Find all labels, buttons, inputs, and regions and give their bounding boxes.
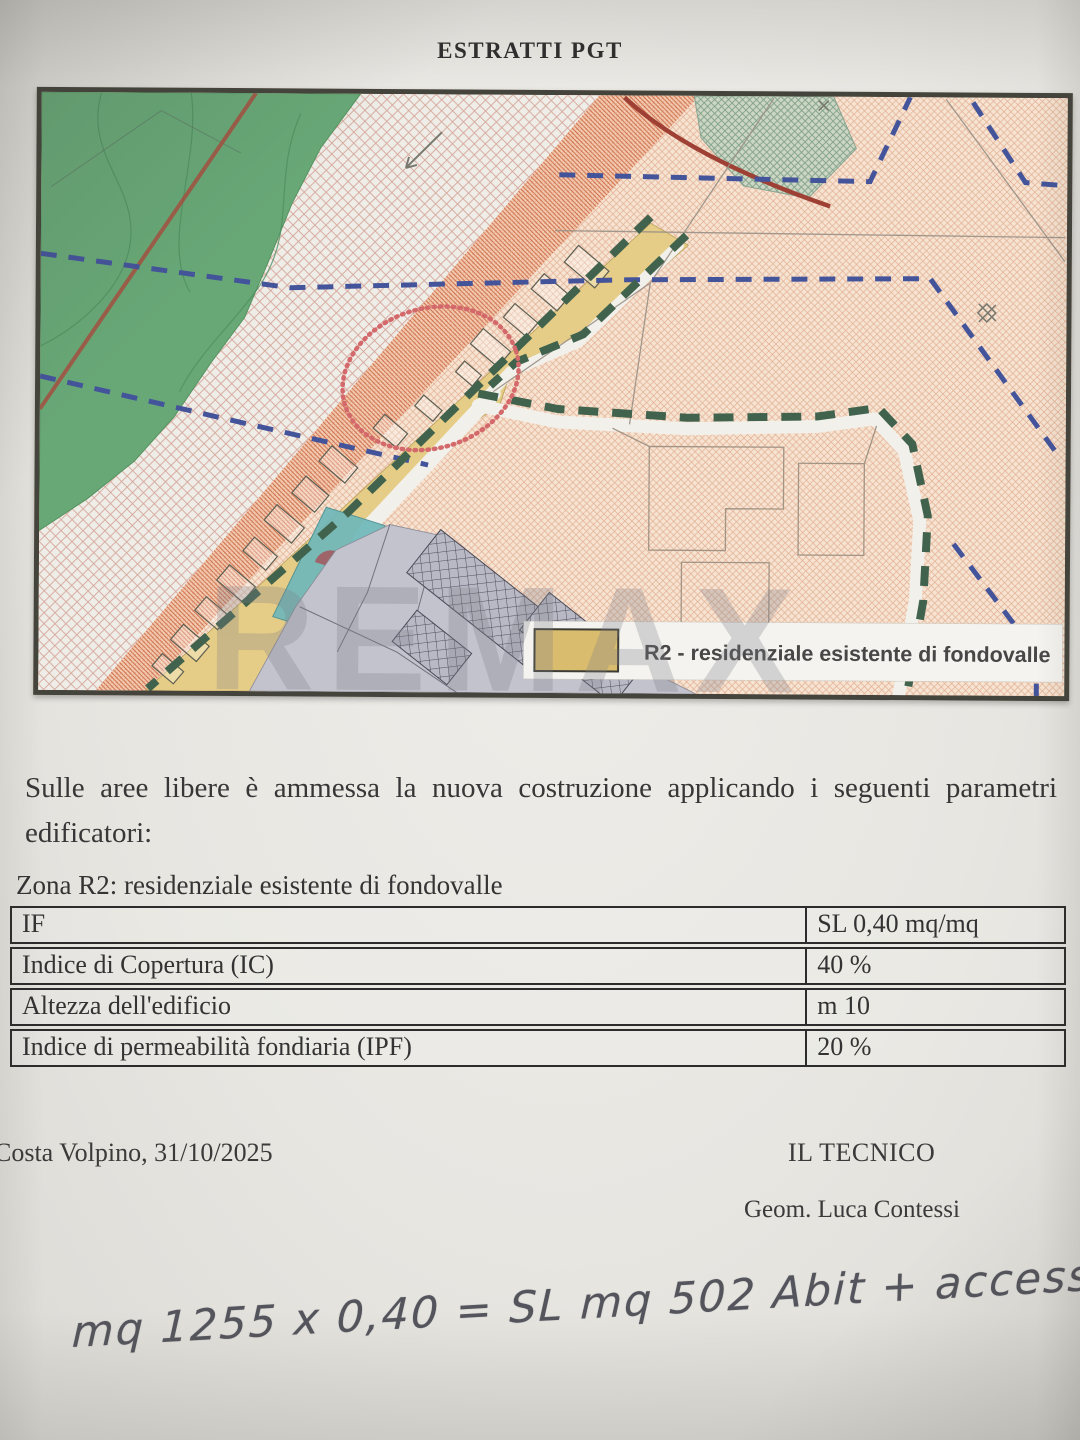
pgt-map-figure: R2 - residenziale esistente di fondovall… — [33, 87, 1073, 701]
page-title: ESTRATTI PGT — [0, 38, 1060, 64]
parameter-value: m 10 — [805, 990, 1064, 1024]
parameter-label: Indice di permeabilità fondiaria (IPF) — [12, 1031, 805, 1065]
watermark: REMAX — [207, 554, 807, 696]
table-row: Indice di Copertura (IC) 40 % — [10, 947, 1066, 985]
parameter-label: IF — [12, 908, 805, 942]
parameter-value: SL 0,40 mq/mq — [805, 908, 1064, 942]
parameter-label: Altezza dell'edificio — [12, 990, 805, 1024]
intro-line-1: Sulle aree libere è ammessa la nuova cos… — [25, 766, 1057, 811]
parameter-value: 20 % — [805, 1031, 1064, 1065]
table-row: Altezza dell'edificio m 10 — [10, 988, 1066, 1026]
handwritten-note: mq 1255 x 0,40 = SL mq 502 Abit + access… — [71, 1251, 1080, 1358]
signer-name: Geom. Luca Contessi — [744, 1196, 960, 1224]
pgt-map-image: R2 - residenziale esistente di fondovall… — [38, 92, 1068, 696]
intro-line-2: edificatori: — [25, 811, 1057, 856]
zone-heading: Zona R2: residenziale esistente di fondo… — [16, 870, 503, 901]
parameters-table: IF SL 0,40 mq/mq Indice di Copertura (IC… — [10, 906, 1066, 1070]
table-row: IF SL 0,40 mq/mq — [10, 906, 1066, 944]
signer-role: IL TECNICO — [788, 1138, 935, 1168]
parameter-value: 40 % — [805, 949, 1064, 983]
place-date: Costa Volpino, 31/10/2025 — [0, 1138, 273, 1168]
table-row: Indice di permeabilità fondiaria (IPF) 2… — [10, 1029, 1066, 1067]
intro-paragraph: Sulle aree libere è ammessa la nuova cos… — [25, 766, 1057, 856]
parameter-label: Indice di Copertura (IC) — [12, 949, 805, 983]
